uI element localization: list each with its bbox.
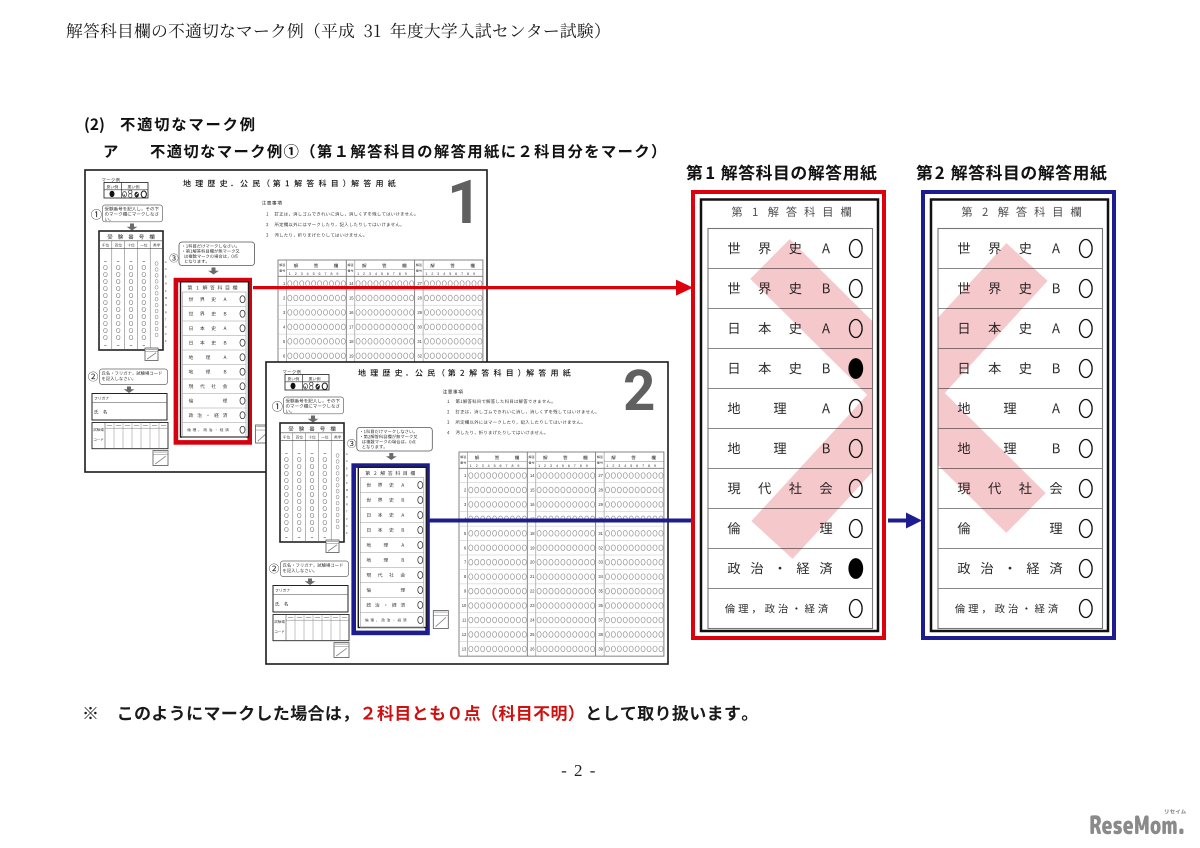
svg-text:123456789: 123456789 [289, 272, 339, 276]
svg-text:123456789: 123456789 [357, 272, 407, 276]
svg-text:123456789: 123456789 [538, 464, 588, 468]
svg-text:- 2 -: - 2 - [561, 761, 597, 780]
svg-text:123456789: 123456789 [606, 464, 656, 468]
svg-text:123456789: 123456789 [470, 464, 520, 468]
svg-text:123456789: 123456789 [425, 272, 475, 276]
